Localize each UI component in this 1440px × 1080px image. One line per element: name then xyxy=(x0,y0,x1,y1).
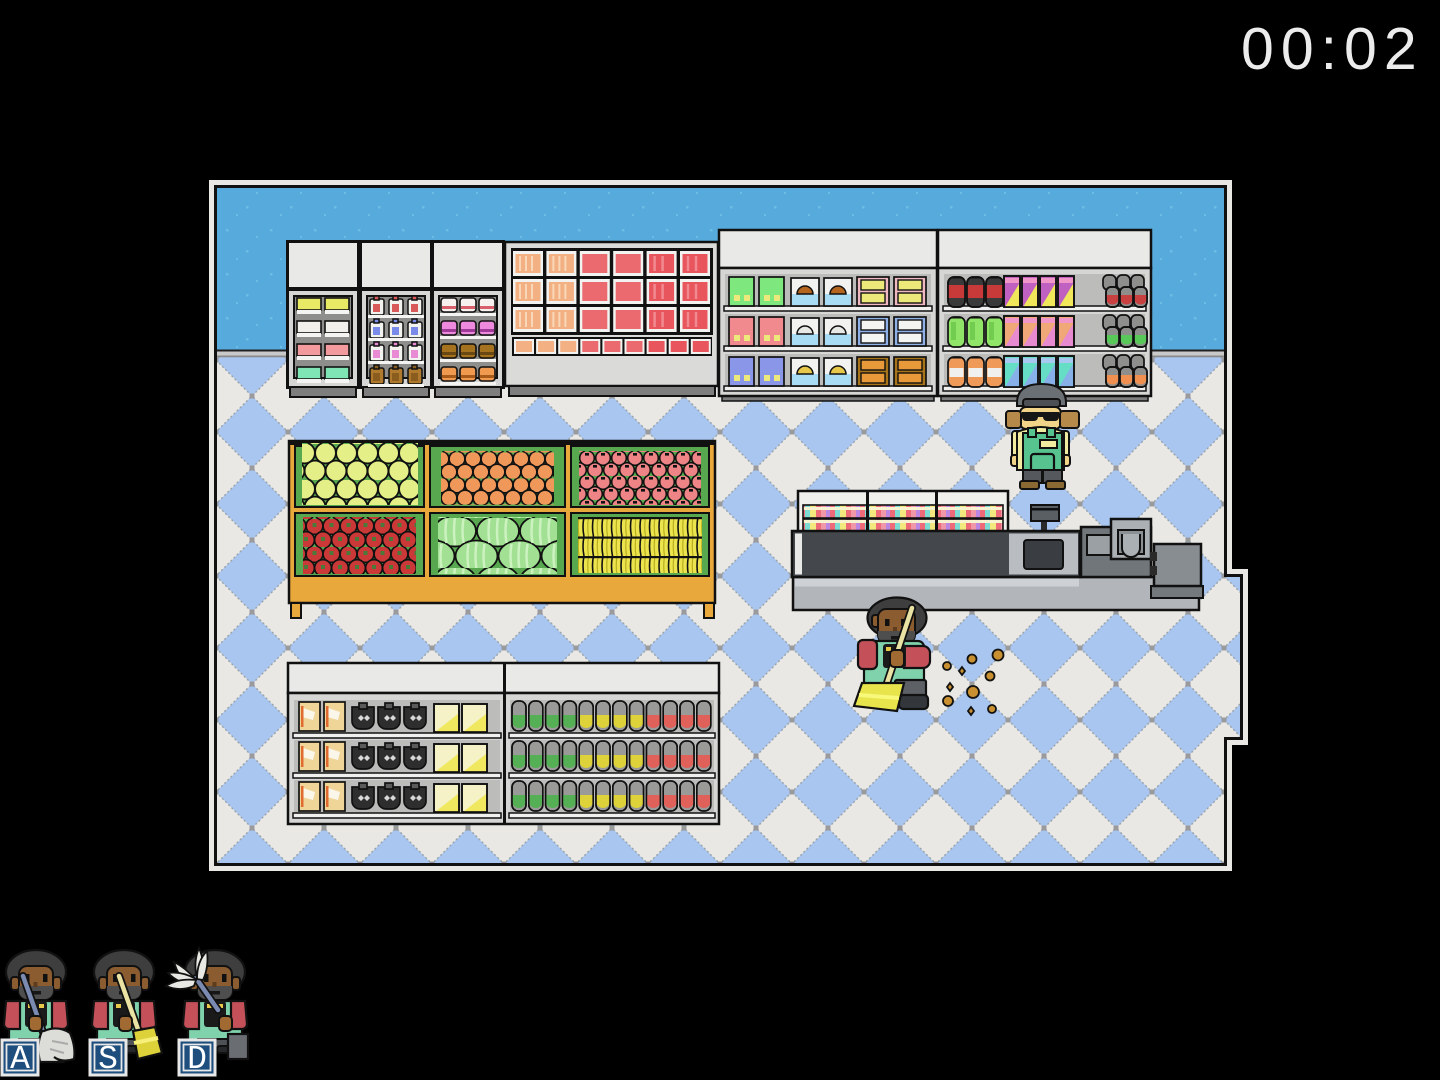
svg-text:S: S xyxy=(98,1041,118,1078)
svg-text:D: D xyxy=(187,1041,207,1078)
svg-text:A: A xyxy=(10,1041,30,1078)
